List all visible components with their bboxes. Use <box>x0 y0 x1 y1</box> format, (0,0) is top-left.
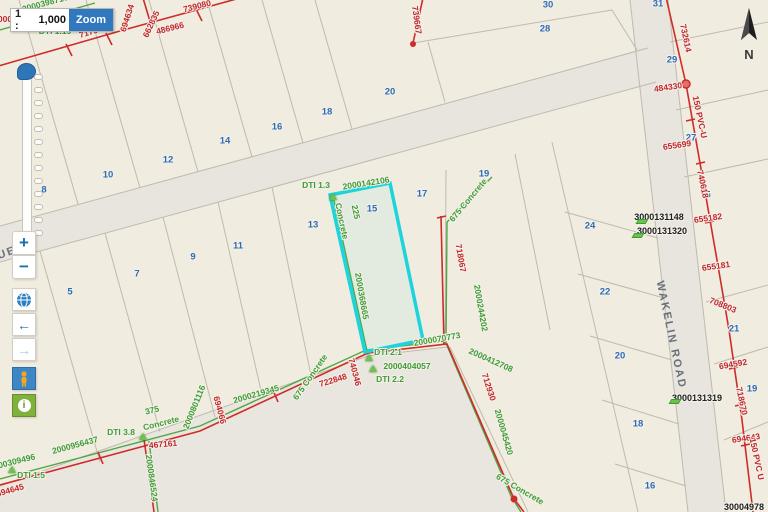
gis-map-viewer: 8101214161820283031292755791113151719242… <box>0 0 768 512</box>
north-label: N <box>735 47 763 62</box>
scale-input[interactable] <box>26 14 69 26</box>
globe-icon <box>16 292 32 308</box>
dti-marker-icon <box>369 365 377 372</box>
arrow-right-icon: → <box>17 342 31 358</box>
slider-tick <box>34 152 43 158</box>
slider-tick <box>34 139 43 145</box>
slider-tick <box>34 126 43 132</box>
arrow-left-icon: ← <box>17 317 31 333</box>
slider-tick <box>34 74 43 80</box>
dti-marker-icon <box>329 193 337 200</box>
plus-icon: + <box>19 233 29 253</box>
slider-tick <box>34 191 43 197</box>
slider-tick <box>34 217 43 223</box>
slider-tick <box>34 178 43 184</box>
dti-marker-icon <box>365 354 373 361</box>
zoom-slider-ticks <box>34 74 44 243</box>
minus-icon: − <box>19 257 29 277</box>
info-icon: i <box>18 399 31 412</box>
scale-control: 1 : Zoom <box>10 8 114 32</box>
slider-tick <box>34 100 43 106</box>
north-arrow: N <box>735 6 763 60</box>
previous-extent-button[interactable]: ← <box>12 313 36 336</box>
selected-parcel-highlight[interactable] <box>330 183 423 352</box>
zoom-button[interactable]: Zoom <box>69 9 113 31</box>
full-extent-button[interactable] <box>12 288 36 311</box>
map-toolbar: + − ← → i <box>12 231 34 417</box>
compass-needle-icon <box>735 6 763 44</box>
identify-button[interactable]: i <box>12 394 36 417</box>
map-canvas[interactable] <box>0 0 768 512</box>
slider-tick <box>34 113 43 119</box>
zoom-in-button[interactable]: + <box>12 231 36 255</box>
scale-prefix-label: 1 : <box>11 8 26 32</box>
slider-tick <box>34 165 43 171</box>
dti-marker-icon <box>8 466 16 473</box>
dti-marker-icon <box>139 433 147 440</box>
slider-tick <box>34 204 43 210</box>
zoom-out-button[interactable]: − <box>12 255 36 279</box>
street-view-button[interactable] <box>12 367 36 390</box>
person-icon <box>18 371 30 387</box>
slider-tick <box>34 87 43 93</box>
next-extent-button[interactable]: → <box>12 338 36 361</box>
